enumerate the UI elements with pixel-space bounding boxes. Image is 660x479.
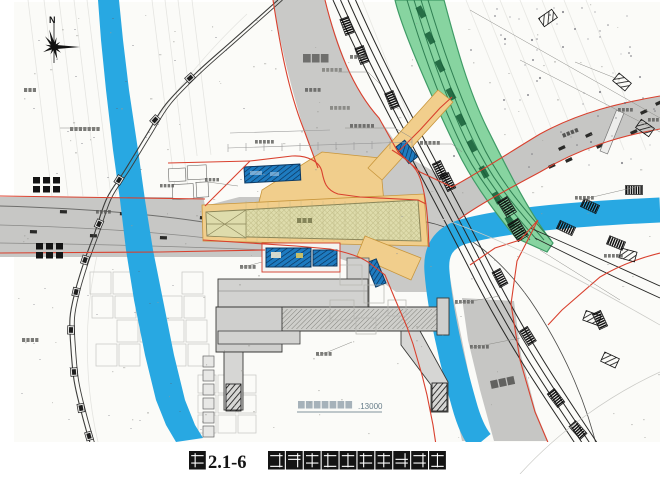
svg-text:2.1-6: 2.1-6 [208,453,247,473]
svg-text:N: N [49,15,56,25]
svg-text:.13000: .13000 [358,402,383,411]
